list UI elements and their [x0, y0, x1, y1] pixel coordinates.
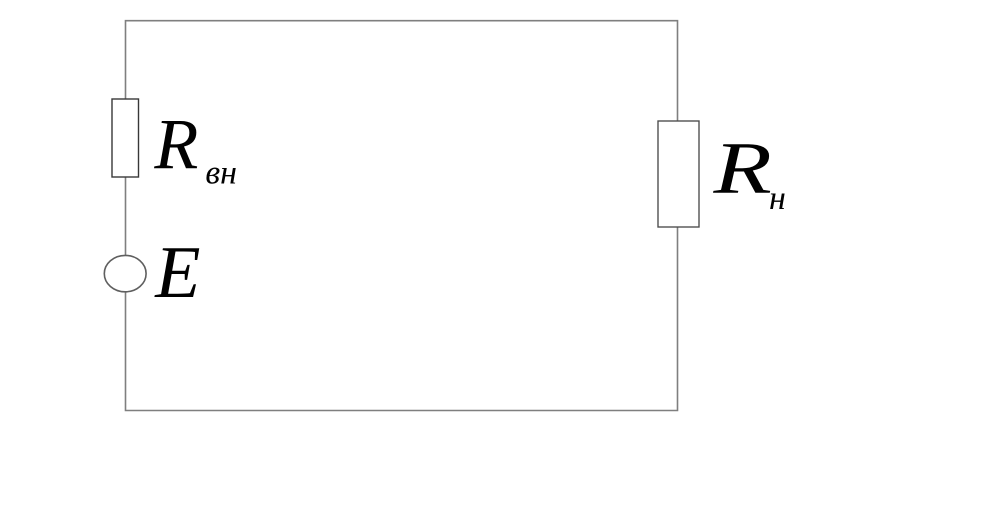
svg-text:н: н: [769, 180, 786, 217]
svg-text:R: R: [712, 128, 771, 209]
svg-text:E: E: [154, 232, 200, 314]
svg-text:вн: вн: [205, 154, 237, 191]
svg-text:R: R: [153, 104, 198, 184]
